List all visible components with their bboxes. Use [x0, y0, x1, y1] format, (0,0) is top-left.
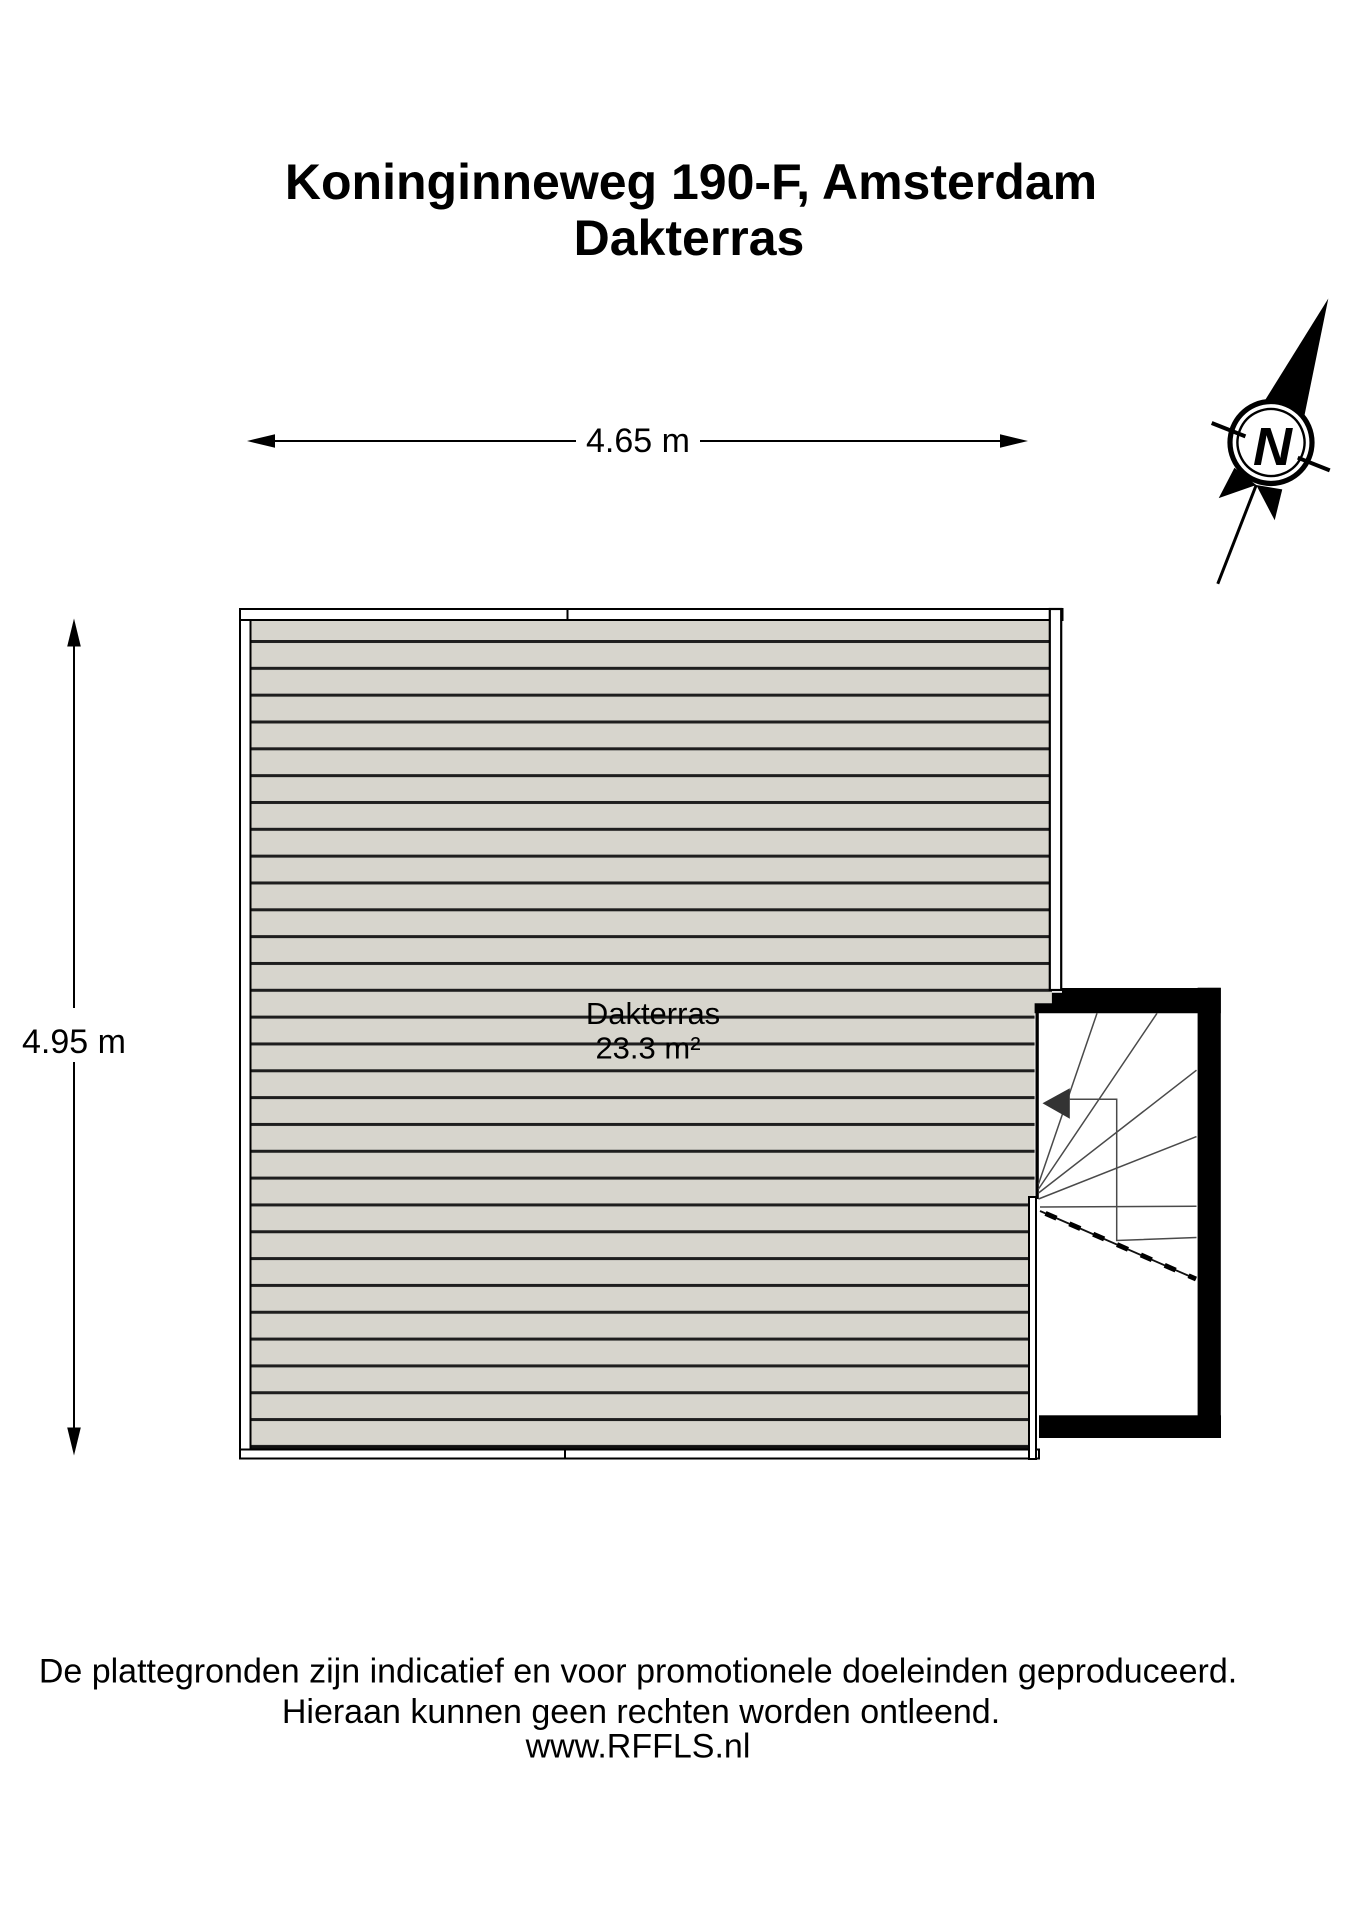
svg-text:De plattegronden zijn indicati: De plattegronden zijn indicatief en voor…: [39, 1652, 1237, 1690]
svg-text:Dakterras: Dakterras: [586, 996, 720, 1031]
svg-text:Hieraan kunnen geen rechten wo: Hieraan kunnen geen rechten worden ontle…: [282, 1693, 1000, 1731]
svg-text:www.RFFLS.nl: www.RFFLS.nl: [525, 1727, 751, 1765]
svg-text:4.95 m: 4.95 m: [22, 1023, 126, 1061]
svg-text:4.65 m: 4.65 m: [586, 422, 690, 460]
svg-text:23.3 m²: 23.3 m²: [595, 1031, 700, 1066]
svg-text:Dakterras: Dakterras: [574, 210, 805, 266]
svg-text:N: N: [1253, 417, 1293, 477]
svg-text:Koninginneweg 190-F, Amsterdam: Koninginneweg 190-F, Amsterdam: [285, 154, 1097, 210]
